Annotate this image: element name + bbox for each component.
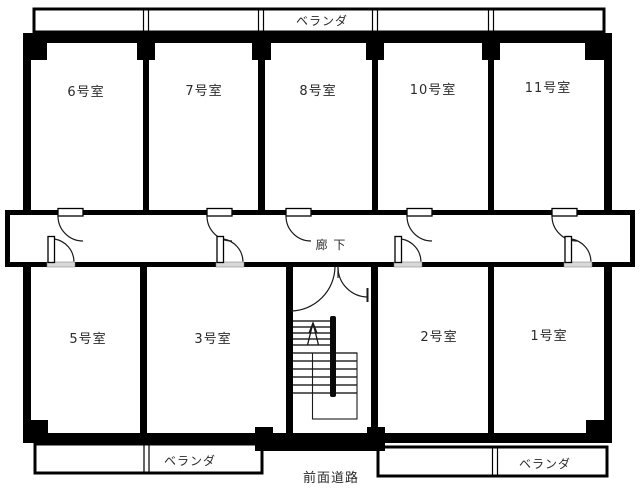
corridor-label: 廊 下 — [316, 237, 347, 252]
room-8-label: 8号室 — [299, 83, 336, 99]
bottom-left-veranda-label: ベランダ — [164, 453, 216, 468]
pillar-icon — [137, 43, 155, 60]
door-room-1 — [564, 237, 592, 268]
door-room-6 — [58, 209, 83, 242]
stair-entry-door — [291, 266, 368, 311]
door-room-3 — [216, 237, 244, 268]
room-6-label: 6号室 — [67, 84, 104, 100]
pillar-icon — [482, 43, 500, 60]
top-outer-wall — [23, 33, 612, 43]
wall-5-3 — [140, 267, 147, 433]
wall-2-1 — [488, 267, 494, 433]
corridor-right-cap — [630, 210, 635, 267]
bottom-right-veranda-label: ベランダ — [519, 456, 571, 471]
pillar-icon — [586, 420, 604, 443]
door-room-10 — [407, 209, 432, 242]
wall-stairs-2 — [371, 267, 378, 451]
corridor-bottom-wall — [5, 262, 635, 267]
left-outer-wall-upper — [23, 43, 31, 210]
pillar-icon — [585, 43, 604, 60]
staircase — [291, 266, 368, 419]
room-1-label: 1号室 — [530, 328, 567, 344]
bottom-outer-wall — [23, 433, 612, 443]
top-veranda-label: ベランダ — [296, 13, 348, 28]
wall-10-11 — [488, 43, 494, 210]
wall-3-stairs — [286, 267, 293, 451]
bottom-left-veranda: ベランダ — [35, 444, 262, 473]
corridor-top-wall — [5, 210, 635, 215]
stair-center-rail — [330, 316, 336, 397]
room-5-label: 5号室 — [69, 331, 106, 347]
right-outer-wall-lower — [604, 267, 612, 443]
stair-treads-upper — [293, 321, 330, 345]
top-veranda: ベランダ — [34, 9, 604, 32]
right-outer-wall-upper — [604, 43, 612, 210]
stair-up-arrow-icon — [308, 323, 319, 345]
door-room-8 — [286, 209, 311, 242]
door-room-5 — [47, 237, 75, 268]
floor-plan-drawing: ベランダ ベランダ ベランダ — [0, 0, 640, 493]
floor-plan: ベランダ ベランダ ベランダ — [0, 0, 640, 493]
pillar-icon — [28, 43, 47, 60]
wall-6-7 — [143, 43, 149, 210]
bottom-right-veranda: ベランダ — [378, 447, 607, 476]
wall-8-10 — [372, 43, 378, 210]
pillar-icon — [252, 43, 271, 60]
pillar-icon — [255, 427, 273, 451]
pillar-icon — [367, 427, 385, 451]
front-road-label: 前面道路 — [303, 470, 359, 486]
room-3-label: 3号室 — [194, 331, 231, 347]
door-room-2 — [394, 237, 422, 268]
stair-treads-lower — [293, 353, 357, 393]
stair-bay-bottom-wall — [263, 443, 385, 451]
room-10-label: 10号室 — [410, 82, 457, 98]
room-2-label: 2号室 — [420, 329, 457, 345]
left-outer-wall-lower — [23, 267, 31, 443]
corridor-left-cap — [5, 210, 10, 267]
pillar-icon — [30, 420, 48, 443]
room-7-label: 7号室 — [185, 83, 222, 99]
room-11-label: 11号室 — [525, 80, 572, 96]
pillar-icon — [366, 43, 384, 60]
wall-7-8 — [258, 43, 265, 210]
